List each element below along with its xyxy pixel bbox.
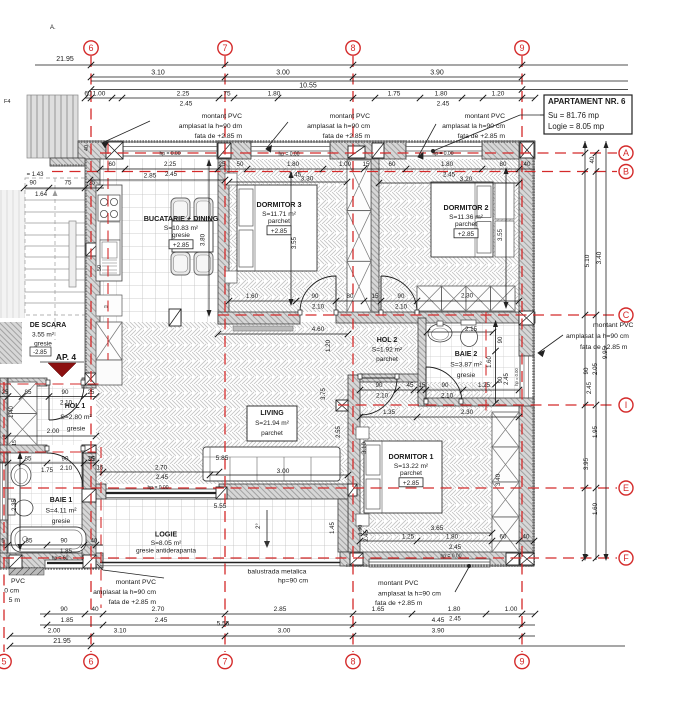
svg-text:S=2.80 m²: S=2.80 m²: [60, 414, 92, 421]
svg-text:15: 15: [372, 293, 379, 300]
svg-text:9: 9: [519, 43, 524, 53]
svg-text:1.60: 1.60: [246, 293, 259, 300]
svg-text:3.20: 3.20: [460, 176, 473, 183]
svg-text:gresie: gresie: [172, 232, 190, 239]
svg-text:2.45: 2.45: [449, 544, 462, 551]
svg-text:F4: F4: [4, 99, 10, 105]
svg-text:90: 90: [62, 389, 69, 396]
svg-text:1.80: 1.80: [268, 91, 281, 98]
svg-text:2°: 2°: [256, 523, 262, 529]
svg-text:BUCATARIE + DINING: BUCATARIE + DINING: [144, 214, 219, 223]
svg-text:parchet: parchet: [261, 430, 283, 437]
svg-text:40: 40: [84, 145, 90, 151]
svg-text:3.55: 3.55: [497, 228, 504, 241]
svg-text:90: 90: [62, 456, 69, 463]
svg-text:montant PVC: montant PVC: [330, 113, 371, 120]
svg-text:gresie: gresie: [34, 341, 52, 348]
svg-text:1.80: 1.80: [448, 606, 461, 613]
svg-text:2.35: 2.35: [12, 499, 18, 511]
svg-text:2.45: 2.45: [165, 171, 178, 178]
svg-text:2.55: 2.55: [336, 426, 342, 438]
svg-text:90: 90: [498, 336, 504, 343]
svg-text:+2.85: +2.85: [458, 231, 475, 238]
svg-text:40: 40: [523, 534, 530, 541]
svg-text:50: 50: [237, 161, 244, 168]
svg-text:2.45: 2.45: [155, 617, 168, 624]
svg-text:2.45: 2.45: [504, 373, 510, 385]
svg-text:2.85: 2.85: [274, 606, 287, 613]
svg-text:A: A: [623, 148, 629, 158]
svg-text:2.05: 2.05: [592, 362, 599, 375]
svg-text:gresie antiderapanta: gresie antiderapanta: [136, 548, 196, 555]
svg-text:+2.85: +2.85: [173, 242, 190, 249]
svg-text:Logie = 8.05 mp: Logie = 8.05 mp: [548, 122, 605, 131]
svg-text:2.10: 2.10: [395, 304, 408, 311]
svg-text:80: 80: [347, 293, 354, 300]
svg-text:1.45: 1.45: [330, 522, 336, 534]
svg-text:2.85: 2.85: [144, 173, 157, 180]
svg-text:1.00: 1.00: [505, 606, 518, 613]
svg-text:1.20: 1.20: [492, 91, 505, 98]
svg-text:2.45: 2.45: [180, 101, 193, 108]
svg-text:B: B: [623, 167, 629, 177]
svg-text:HOL 2: HOL 2: [377, 337, 398, 344]
svg-text:1.95: 1.95: [592, 425, 599, 438]
svg-text:2.70: 2.70: [155, 465, 168, 472]
svg-text:2.45: 2.45: [586, 381, 593, 394]
svg-text:fata de +2.85 m: fata de +2.85 m: [375, 600, 423, 607]
svg-text:1.00: 1.00: [93, 91, 106, 98]
svg-text:F: F: [623, 553, 629, 563]
svg-text:85: 85: [25, 456, 32, 463]
svg-text:S=21.94 m²: S=21.94 m²: [255, 420, 290, 427]
svg-text:85: 85: [25, 389, 32, 396]
svg-text:S=11.36 m²: S=11.36 m²: [449, 214, 484, 221]
svg-text:10.55: 10.55: [299, 83, 317, 90]
svg-text:fata de +2.85 m: fata de +2.85 m: [109, 599, 157, 606]
svg-text:1.35: 1.35: [383, 409, 396, 416]
svg-text:S=3.87 m²: S=3.87 m²: [450, 362, 482, 369]
svg-text:+2.85: +2.85: [271, 228, 288, 235]
svg-text:0 cm: 0 cm: [4, 588, 19, 595]
svg-text:C: C: [623, 310, 630, 320]
svg-text:montant PVC: montant PVC: [378, 580, 419, 587]
svg-text:6: 6: [88, 657, 93, 667]
svg-text:PVC: PVC: [11, 578, 25, 585]
svg-text:S=8.05 m²: S=8.05 m²: [151, 540, 182, 547]
svg-text:3.55: 3.55: [291, 236, 298, 249]
svg-text:21.95: 21.95: [56, 56, 74, 63]
svg-text:40: 40: [91, 606, 99, 613]
svg-text:5.55: 5.55: [214, 503, 227, 510]
svg-text:hp = 0.00: hp = 0.00: [160, 151, 181, 157]
svg-text:2.70: 2.70: [152, 606, 165, 613]
svg-text:4.45: 4.45: [432, 617, 445, 624]
svg-text:I: I: [625, 400, 628, 410]
svg-text:5 m: 5 m: [9, 597, 21, 604]
svg-text:2.10: 2.10: [441, 393, 454, 400]
svg-text:5.85: 5.85: [216, 455, 229, 462]
svg-text:hp = 0.00: hp = 0.00: [279, 152, 300, 158]
svg-text:gresie: gresie: [67, 426, 86, 433]
svg-text:1.75: 1.75: [41, 467, 54, 474]
svg-text:25: 25: [88, 457, 95, 463]
svg-text:+2.85: +2.85: [403, 480, 420, 487]
svg-text:1.85: 1.85: [61, 617, 74, 624]
svg-text:40: 40: [524, 161, 531, 168]
svg-text:Su = 81.76 mp: Su = 81.76 mp: [548, 111, 600, 120]
svg-text:90: 90: [312, 293, 319, 300]
svg-text:25: 25: [219, 161, 226, 168]
svg-text:1.00: 1.00: [339, 161, 352, 168]
svg-text:1.80: 1.80: [435, 91, 448, 98]
svg-text:1.80: 1.80: [287, 161, 300, 168]
svg-text:3.10: 3.10: [151, 70, 165, 77]
svg-text:APARTAMENT NR. 6: APARTAMENT NR. 6: [548, 97, 626, 106]
svg-text:2.10: 2.10: [312, 304, 325, 311]
svg-text:3.95: 3.95: [583, 457, 590, 470]
svg-text:amplasat la h=90 cm: amplasat la h=90 cm: [93, 589, 156, 596]
svg-text:3.10: 3.10: [114, 628, 127, 635]
svg-text:15: 15: [419, 382, 426, 389]
svg-text:montant PVC: montant PVC: [465, 113, 506, 120]
svg-text:S=4.11 m²: S=4.11 m²: [45, 508, 77, 515]
svg-text:hp = 0.00: hp = 0.00: [441, 554, 462, 560]
svg-text:3.90: 3.90: [432, 628, 445, 635]
svg-text:fata de +2.85 m: fata de +2.85 m: [323, 133, 371, 140]
svg-text:LOGIE: LOGIE: [155, 530, 178, 539]
svg-text:1.25: 1.25: [478, 382, 491, 389]
svg-text:1.60: 1.60: [592, 502, 599, 515]
svg-text:gresie: gresie: [52, 518, 71, 525]
svg-text:5.10: 5.10: [584, 254, 591, 267]
svg-text:HOL 1: HOL 1: [65, 403, 86, 410]
svg-text:2.45: 2.45: [364, 530, 370, 542]
svg-text:5.55: 5.55: [217, 621, 230, 628]
svg-text:montant PVC: montant PVC: [202, 113, 243, 120]
svg-text:80: 80: [500, 161, 507, 168]
svg-text:fata de +2.85 m: fata de +2.85 m: [195, 133, 243, 140]
svg-text:90: 90: [442, 382, 449, 389]
svg-text:hp = 0.00: hp = 0.00: [433, 151, 454, 157]
svg-text:S=10.83 m²: S=10.83 m²: [164, 225, 199, 232]
svg-text:3.40: 3.40: [495, 473, 502, 486]
svg-text:5: 5: [1, 657, 6, 667]
svg-text:2.25: 2.25: [177, 91, 190, 98]
svg-text:hp=90 cm: hp=90 cm: [278, 578, 308, 585]
svg-text:2.45: 2.45: [449, 617, 461, 623]
svg-text:1.90: 1.90: [358, 525, 364, 536]
svg-text:-2.85: -2.85: [33, 350, 47, 356]
svg-text:3.00: 3.00: [277, 468, 290, 475]
svg-text:2.00: 2.00: [48, 628, 61, 635]
svg-text:2.10: 2.10: [376, 393, 389, 400]
svg-text:gresie: gresie: [457, 372, 476, 379]
svg-text:2.30: 2.30: [461, 409, 474, 416]
svg-text:60: 60: [500, 534, 507, 541]
svg-text:DE SCARA: DE SCARA: [30, 322, 67, 329]
svg-text:DORMITOR 3: DORMITOR 3: [257, 200, 302, 209]
svg-text:25: 25: [89, 181, 96, 187]
svg-text:2.25: 2.25: [164, 161, 177, 168]
svg-text:75: 75: [65, 180, 72, 187]
svg-text:50: 50: [97, 265, 103, 271]
svg-text:3.65: 3.65: [431, 525, 444, 532]
svg-text:amplasat la h=90 cm: amplasat la h=90 cm: [307, 123, 370, 130]
svg-text:BAIE 2: BAIE 2: [455, 351, 478, 358]
svg-text:parchet: parchet: [400, 470, 422, 477]
svg-text:40: 40: [589, 156, 596, 163]
svg-text:15: 15: [12, 440, 18, 446]
svg-text:hp = 0.00: hp = 0.00: [148, 485, 169, 491]
svg-text:1.64: 1.64: [35, 191, 48, 198]
svg-text:9: 9: [519, 657, 524, 667]
svg-text:3.00: 3.00: [276, 70, 290, 77]
svg-text:3.10: 3.10: [362, 442, 368, 454]
svg-text:90: 90: [398, 293, 405, 300]
svg-text:6: 6: [88, 43, 93, 53]
svg-text:1.20: 1.20: [325, 339, 332, 352]
svg-text:2.45: 2.45: [156, 474, 169, 481]
svg-text:3.40: 3.40: [596, 251, 603, 264]
svg-text:= 1.43: = 1.43: [27, 172, 45, 178]
svg-text:amplasat la h=90 dm: amplasat la h=90 dm: [179, 123, 243, 130]
svg-text:25: 25: [2, 390, 9, 396]
svg-text:60: 60: [389, 161, 396, 168]
svg-text:7: 7: [222, 43, 227, 53]
svg-text:1.25: 1.25: [402, 534, 415, 541]
svg-text:fata de +2.85 m: fata de +2.85 m: [580, 344, 628, 351]
svg-text:2.45: 2.45: [437, 101, 450, 108]
svg-text:3.90: 3.90: [430, 70, 444, 77]
svg-text:balustrada metalica: balustrada metalica: [248, 569, 307, 576]
svg-text:1.40: 1.40: [9, 406, 15, 418]
svg-text:3.30: 3.30: [301, 176, 314, 183]
svg-text:75: 75: [223, 91, 231, 98]
svg-text:90: 90: [376, 382, 383, 389]
svg-text:4.60: 4.60: [312, 326, 325, 333]
svg-text:3.55 m²: 3.55 m²: [32, 332, 55, 339]
svg-text:40: 40: [91, 539, 98, 545]
svg-text:60: 60: [84, 91, 92, 98]
svg-text:DORMITOR 2: DORMITOR 2: [444, 203, 489, 212]
svg-text:8: 8: [350, 657, 355, 667]
svg-text:montant PVC: montant PVC: [116, 579, 157, 586]
svg-text:7: 7: [222, 657, 227, 667]
svg-text:15: 15: [97, 466, 104, 472]
svg-text:90: 90: [60, 606, 68, 613]
svg-text:amplasat la h=90 cm: amplasat la h=90 cm: [378, 591, 441, 598]
svg-text:LIVING: LIVING: [260, 410, 284, 417]
svg-text:90: 90: [61, 538, 68, 545]
svg-text:3.80: 3.80: [200, 233, 207, 246]
svg-text:60: 60: [109, 161, 116, 168]
svg-text:montant PVC: montant PVC: [593, 322, 634, 329]
svg-text:90: 90: [583, 367, 590, 374]
svg-text:1.80: 1.80: [446, 534, 459, 541]
svg-text:1.85: 1.85: [60, 548, 73, 555]
svg-text:amplasat la h=90 cm: amplasat la h=90 cm: [566, 333, 629, 340]
svg-text:fata de +2.85 m: fata de +2.85 m: [458, 133, 506, 140]
svg-text:2.15: 2.15: [465, 326, 478, 333]
svg-text:8: 8: [350, 43, 355, 53]
svg-text:amplasat la h=90 cm: amplasat la h=90 cm: [442, 123, 505, 130]
svg-text:DORMITOR 1: DORMITOR 1: [389, 452, 434, 461]
svg-text:2.00: 2.00: [47, 428, 60, 435]
svg-text:S=11.71 m²: S=11.71 m²: [262, 211, 297, 218]
svg-text:21.95: 21.95: [53, 638, 71, 645]
svg-text:2.10: 2.10: [60, 465, 73, 472]
svg-text:S=1.92 m²: S=1.92 m²: [372, 347, 403, 354]
svg-text:85: 85: [26, 538, 33, 545]
svg-text:45: 45: [407, 382, 414, 389]
svg-text:parchet: parchet: [268, 218, 290, 225]
svg-text:BAIE 1: BAIE 1: [50, 497, 73, 504]
svg-text:90: 90: [30, 180, 37, 187]
svg-text:1.75: 1.75: [388, 91, 401, 98]
svg-text:S=13.22 m²: S=13.22 m²: [394, 463, 429, 470]
svg-text:parchet: parchet: [455, 221, 477, 228]
svg-text:A.: A.: [50, 25, 56, 31]
svg-text:parchet: parchet: [376, 356, 398, 363]
svg-text:3.75: 3.75: [321, 388, 327, 400]
svg-text:15: 15: [363, 161, 370, 168]
svg-text:1.60: 1.60: [487, 356, 493, 368]
svg-text:E: E: [623, 483, 629, 493]
svg-text:2.30: 2.30: [461, 293, 474, 300]
svg-text:25: 25: [88, 390, 95, 396]
svg-text:2.45: 2.45: [443, 172, 456, 179]
svg-text:hp = 60: hp = 60: [52, 556, 69, 562]
svg-text:AP. 4: AP. 4: [56, 352, 76, 362]
svg-text:hp = 0.00: hp = 0.00: [514, 368, 519, 386]
svg-text:1.65: 1.65: [372, 606, 385, 613]
svg-text:3.00: 3.00: [278, 628, 291, 635]
svg-text:1.80: 1.80: [441, 161, 454, 168]
